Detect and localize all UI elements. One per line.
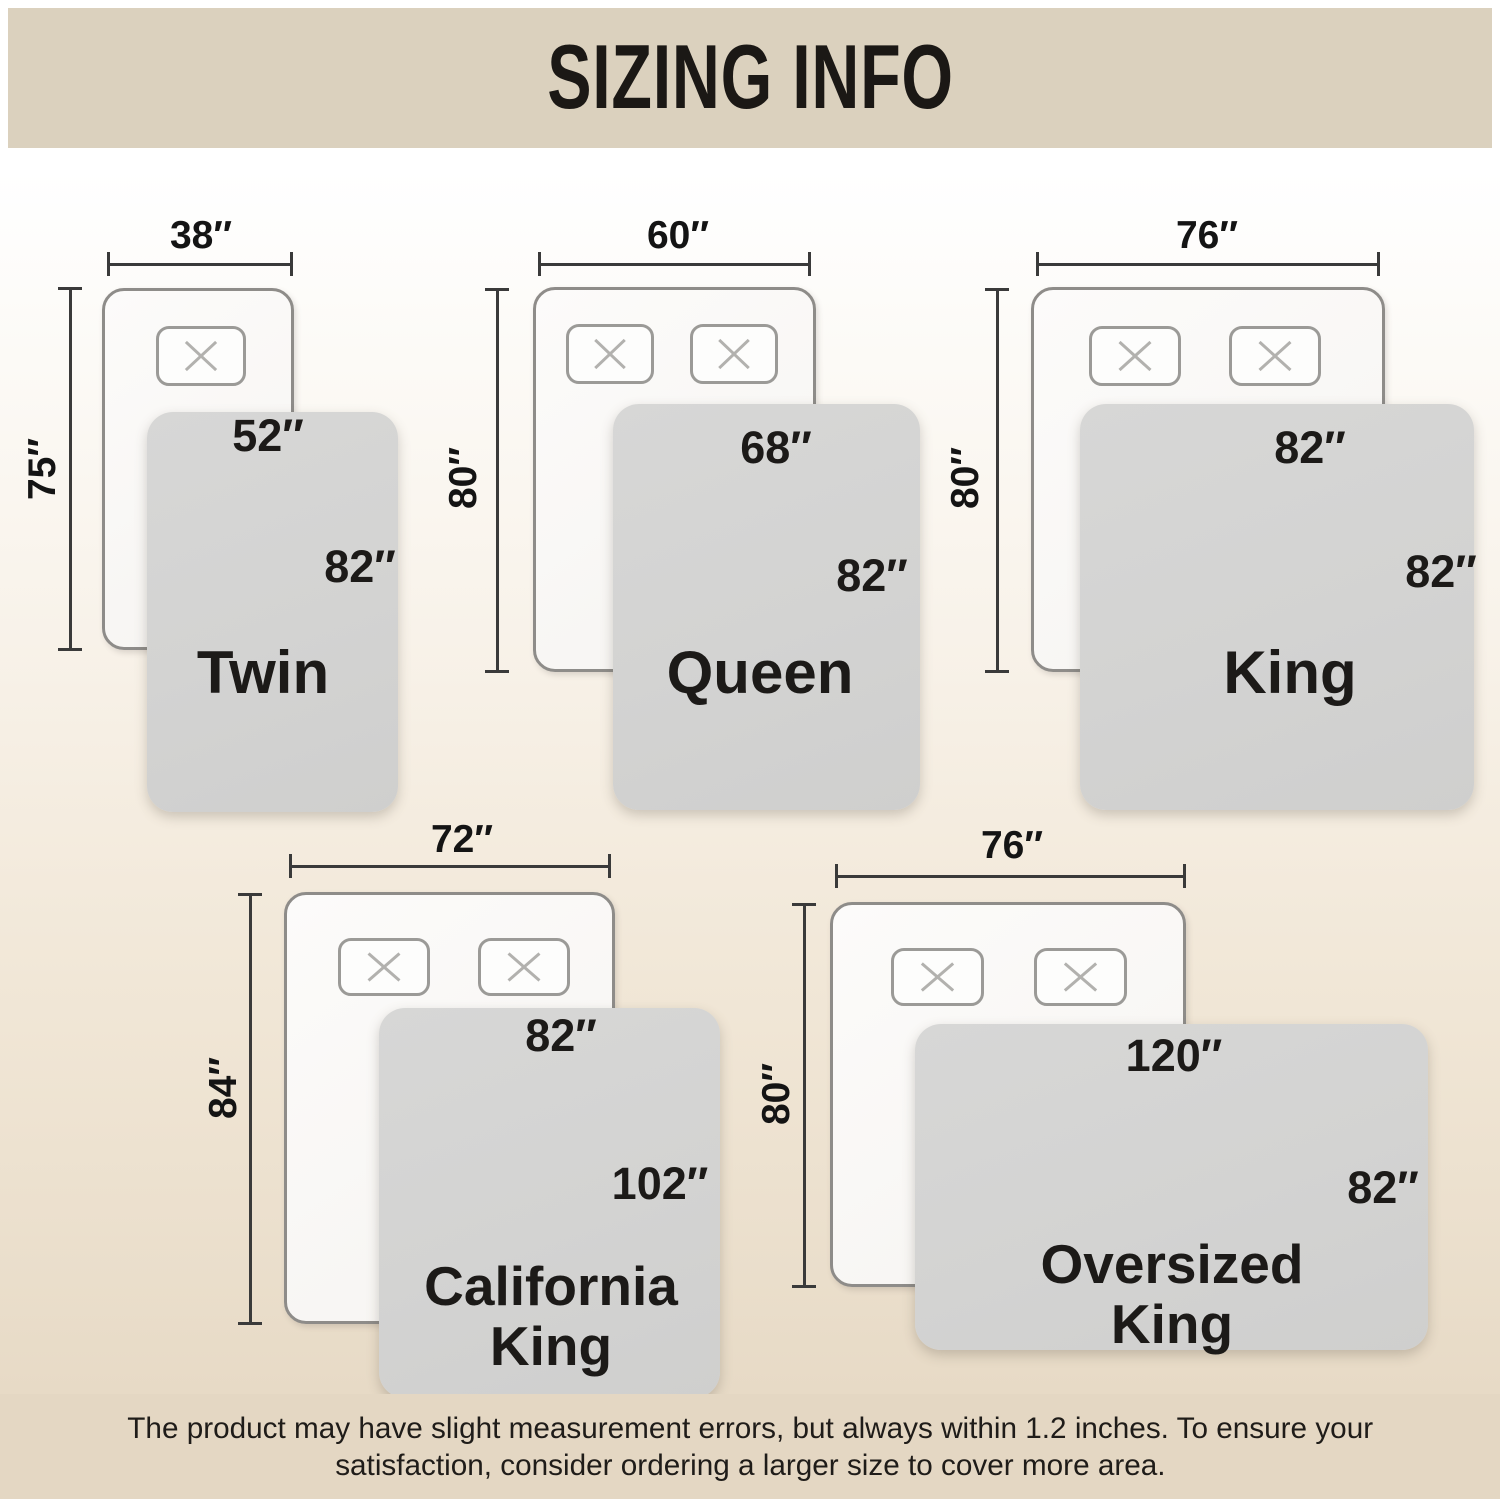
dimension-tick xyxy=(808,252,811,276)
disclaimer-line-2: satisfaction, consider ordering a larger… xyxy=(335,1448,1165,1483)
dimension-tick xyxy=(58,287,82,290)
disclaimer-line-1: The product may have slight measurement … xyxy=(127,1411,1373,1446)
pillow-icon xyxy=(690,324,778,384)
width-dimension-label: 76″ xyxy=(927,820,1097,872)
size-name-line: Oversized xyxy=(942,1234,1402,1294)
dimension-tick xyxy=(985,288,1009,291)
size-name-line: California xyxy=(321,1256,781,1316)
blanket-width-label: 82″ xyxy=(451,1010,671,1062)
dimension-tick xyxy=(238,893,262,896)
header-bar: SIZING INFO xyxy=(8,8,1492,148)
size-name-line: King xyxy=(942,1294,1402,1354)
sizing-info-infographic: SIZING INFO 38″75″52″82″Twin60″80″68″82″… xyxy=(0,0,1500,1499)
width-dimension-line xyxy=(539,263,810,266)
pillow-x-icon xyxy=(1232,329,1318,383)
size-name-label: OversizedKing xyxy=(942,1234,1402,1354)
pillow-x-icon xyxy=(481,941,567,993)
pillow-icon xyxy=(566,324,654,384)
dimension-tick xyxy=(608,854,611,878)
width-dimension-line xyxy=(836,875,1185,878)
dimension-tick xyxy=(485,670,509,673)
width-dimension-line xyxy=(108,263,292,266)
dimension-tick xyxy=(238,1322,262,1325)
blanket-height-label: 82″ xyxy=(250,541,470,593)
width-dimension-line xyxy=(1037,263,1379,266)
width-dimension-label: 76″ xyxy=(1122,210,1292,262)
pillow-x-icon xyxy=(159,329,243,383)
dimension-tick xyxy=(538,252,541,276)
pillow-x-icon xyxy=(1037,951,1124,1003)
size-name-label: King xyxy=(1060,642,1500,704)
size-name-line: King xyxy=(321,1316,781,1376)
pillow-x-icon xyxy=(894,951,981,1003)
height-dimension-label: 80″ xyxy=(940,393,992,563)
height-dimension-label: 80″ xyxy=(438,393,490,563)
pillow-icon xyxy=(1229,326,1321,386)
pillow-icon xyxy=(156,326,246,386)
pillow-x-icon xyxy=(569,327,651,381)
pillow-x-icon xyxy=(1092,329,1178,383)
dimension-tick xyxy=(792,903,816,906)
dimension-tick xyxy=(835,864,838,888)
size-name-line: Queen xyxy=(530,642,990,704)
blanket-width-label: 52″ xyxy=(158,410,378,462)
blanket-width-label: 68″ xyxy=(666,422,886,474)
dimension-tick xyxy=(290,252,293,276)
height-dimension-line xyxy=(69,288,72,650)
height-dimension-line xyxy=(803,904,806,1287)
dimension-tick xyxy=(289,854,292,878)
width-dimension-label: 60″ xyxy=(593,210,763,262)
pillow-icon xyxy=(478,938,570,996)
height-dimension-line xyxy=(996,289,999,672)
height-dimension-label: 84″ xyxy=(198,1003,250,1173)
pillow-icon xyxy=(1089,326,1181,386)
blanket-height-label: 82″ xyxy=(1331,546,1500,598)
height-dimension-line xyxy=(496,289,499,672)
dimension-tick xyxy=(485,288,509,291)
footer-bar: The product may have slight measurement … xyxy=(0,1394,1500,1499)
blanket-height-label: 102″ xyxy=(550,1158,770,1210)
height-dimension-label: 80″ xyxy=(751,1009,803,1179)
dimension-tick xyxy=(107,252,110,276)
dimension-tick xyxy=(1036,252,1039,276)
blanket-overlay xyxy=(147,412,398,812)
blanket-height-label: 82″ xyxy=(1273,1162,1493,1214)
pillow-icon xyxy=(338,938,430,996)
dimension-tick xyxy=(985,670,1009,673)
size-name-line: King xyxy=(1060,642,1500,704)
width-dimension-label: 72″ xyxy=(377,814,547,866)
width-dimension-label: 38″ xyxy=(116,210,286,262)
size-name-label: Twin xyxy=(33,642,493,704)
height-dimension-label: 75″ xyxy=(17,384,69,554)
blanket-width-label: 120″ xyxy=(1064,1030,1284,1082)
pillow-icon xyxy=(1034,948,1127,1006)
dimension-tick xyxy=(1183,864,1186,888)
page-title: SIZING INFO xyxy=(547,26,954,130)
dimension-tick xyxy=(1377,252,1380,276)
size-name-line: Twin xyxy=(33,642,493,704)
pillow-x-icon xyxy=(693,327,775,381)
pillow-x-icon xyxy=(341,941,427,993)
pillow-icon xyxy=(891,948,984,1006)
size-name-label: Queen xyxy=(530,642,990,704)
dimension-tick xyxy=(792,1285,816,1288)
size-name-label: CaliforniaKing xyxy=(321,1256,781,1376)
blanket-width-label: 82″ xyxy=(1200,422,1420,474)
